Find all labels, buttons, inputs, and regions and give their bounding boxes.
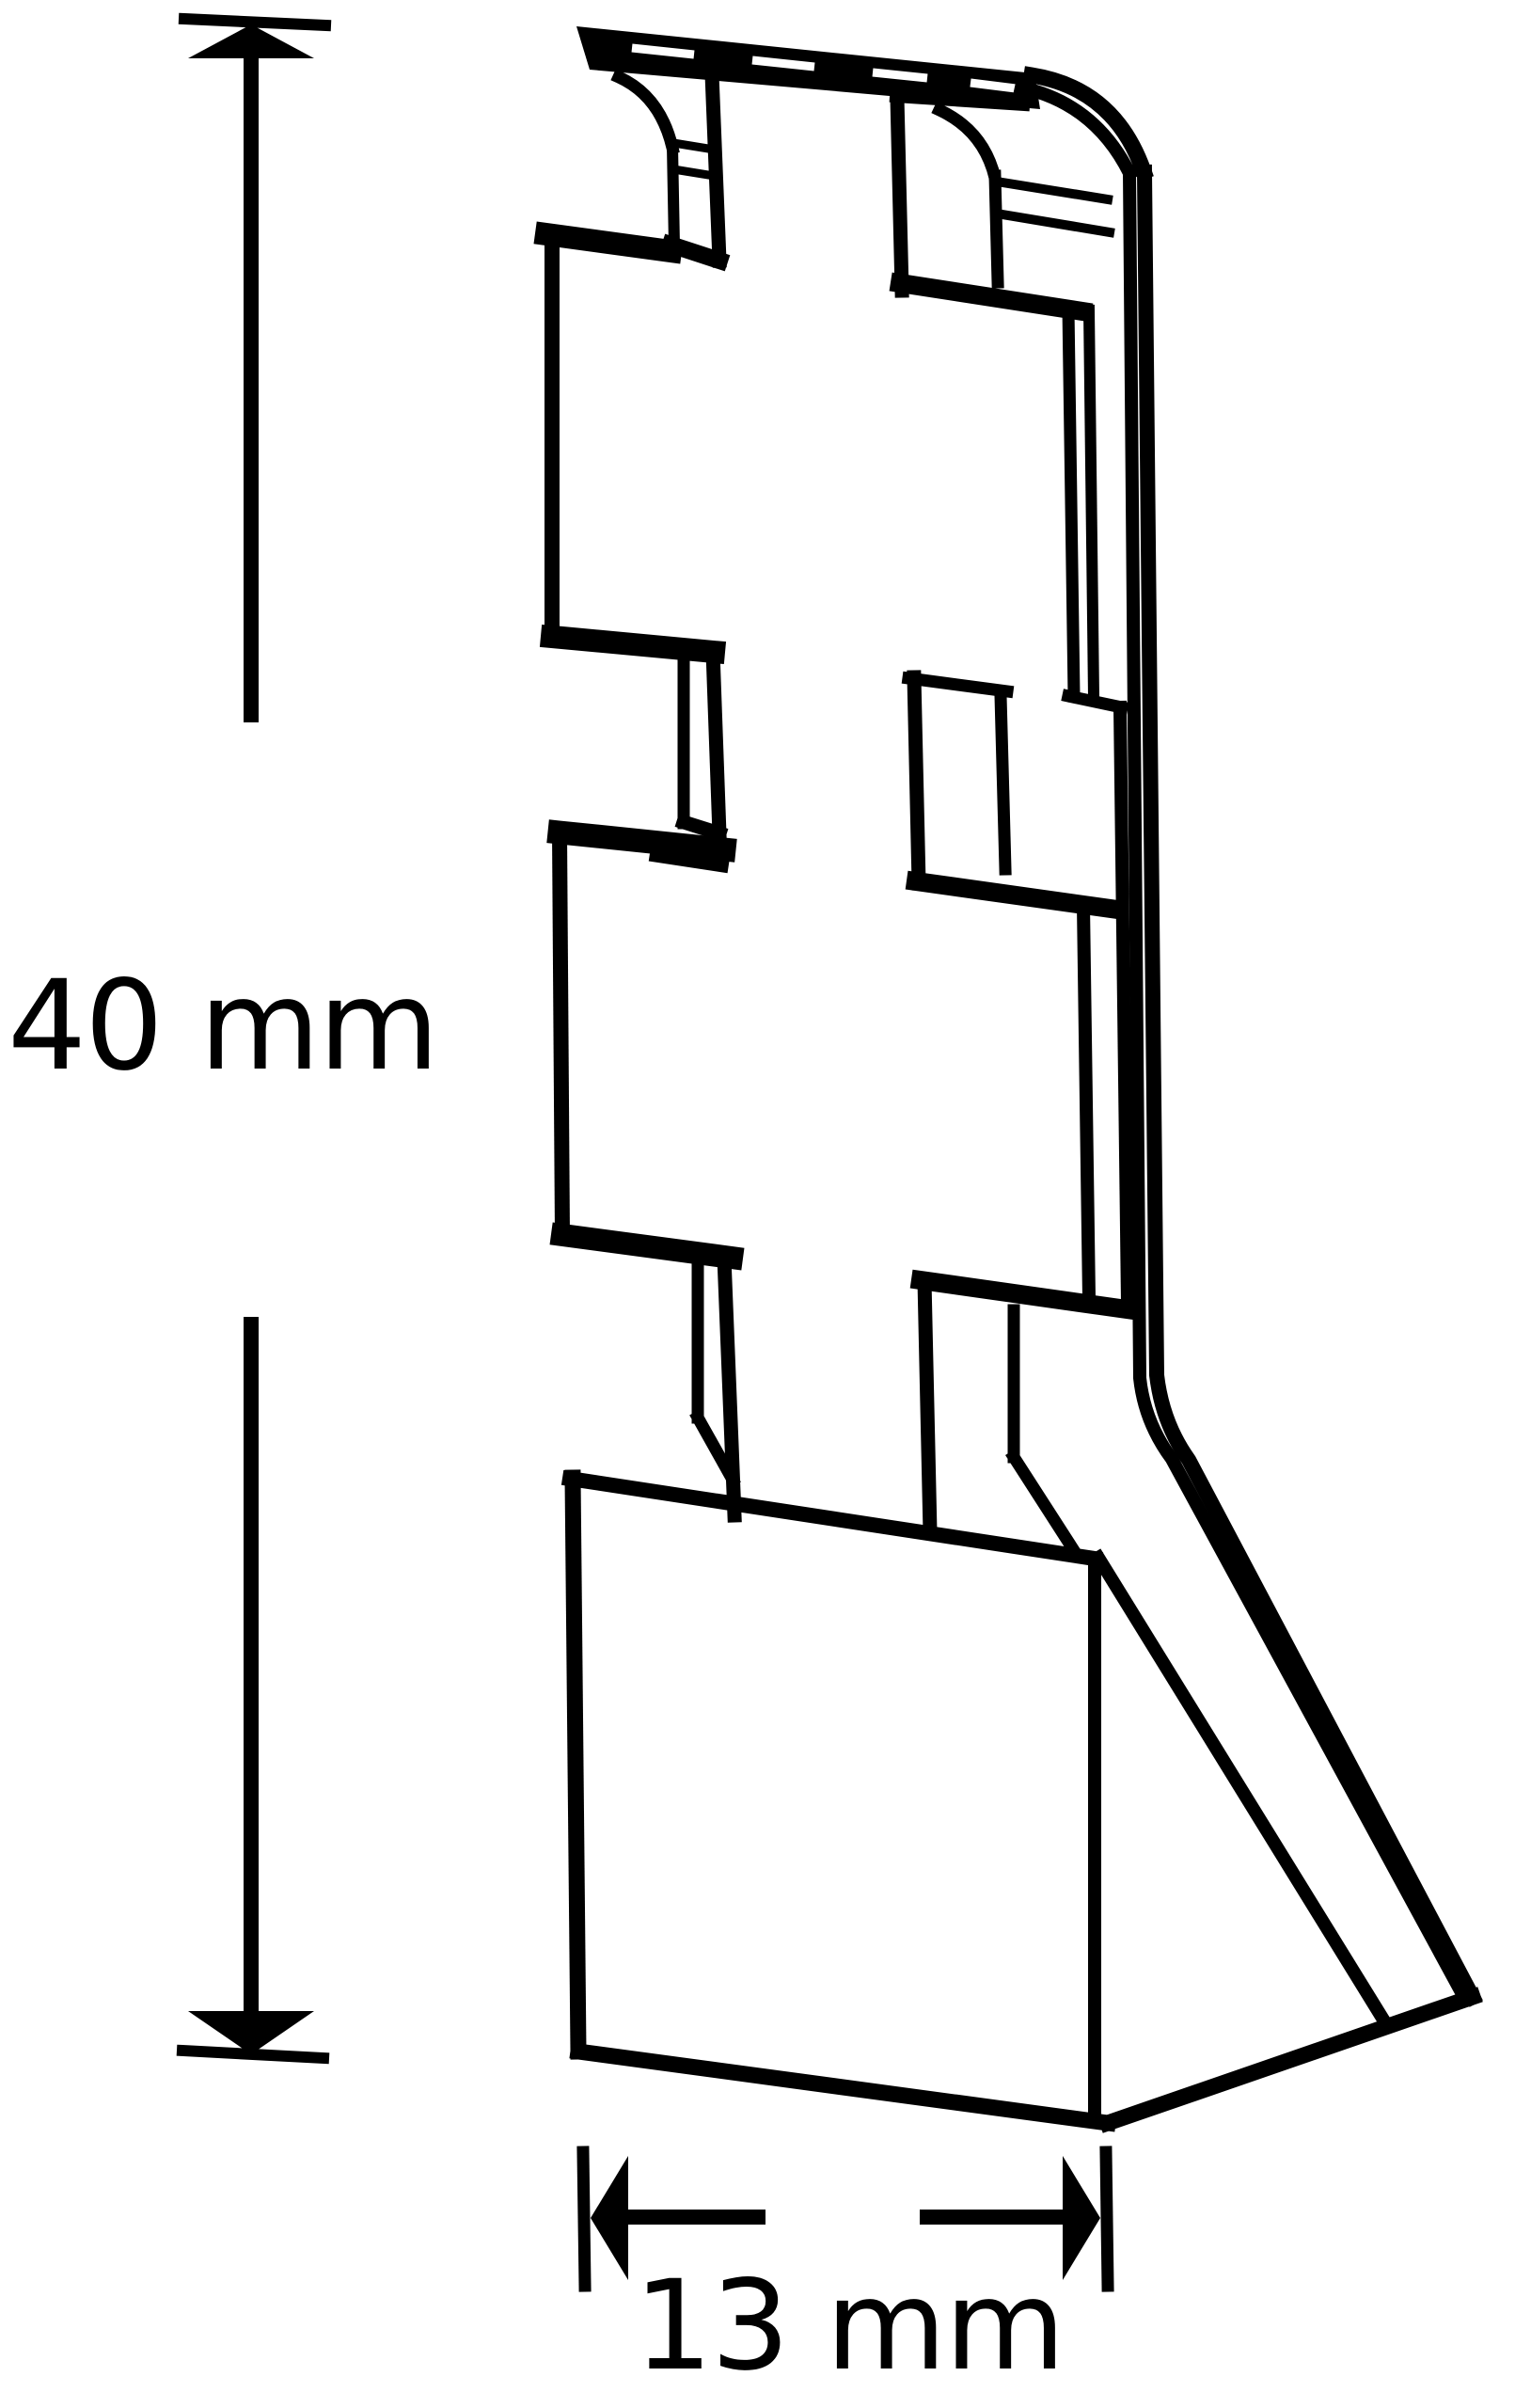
height-tick-bottom — [182, 2051, 324, 2058]
rail-highlight-4 — [971, 83, 1016, 88]
right-tab2-bottom-bar — [916, 881, 1111, 909]
flange-bottom-bar — [546, 234, 671, 251]
depth-arrowhead-right-icon — [1063, 2156, 1100, 2280]
right-tab1-rung-1 — [997, 182, 1108, 199]
tab2-corner-patch — [658, 854, 720, 863]
base-left-edge — [573, 1478, 578, 2052]
tab2-left-edge — [560, 832, 562, 1235]
part-line-work — [546, 26, 1473, 2123]
tab2-top-bar — [560, 832, 724, 849]
depth-dimension-label: 13 mm — [634, 2254, 1064, 2399]
plate-front-edge-upper-1 — [1068, 309, 1074, 696]
flange-rung-2 — [673, 169, 708, 175]
flange-inner-vertical — [672, 146, 674, 246]
right-tab1-left-edge — [897, 98, 902, 291]
base-top-edge — [570, 1479, 1095, 1559]
right-tab2-top-edge — [908, 678, 1007, 691]
height-tick-top — [184, 19, 325, 25]
depth-dimension: 13 mm — [583, 2152, 1108, 2399]
diagram-canvas: 40 mm 13 mm — [0, 0, 1531, 2408]
flange-outer-vertical — [712, 74, 719, 261]
rail-highlight-3 — [873, 72, 927, 78]
notch2-step-bar — [562, 1235, 732, 1258]
depth-tick-right — [1106, 2152, 1108, 2286]
notch1-wall-outer — [713, 652, 719, 834]
right-tab1-bottom-bar — [900, 283, 1082, 311]
flange-rung-1 — [673, 143, 708, 149]
right-tab1-curve — [939, 110, 995, 178]
right-notch-left-edge — [924, 1280, 930, 1532]
height-dimension-label: 40 mm — [8, 954, 437, 1099]
right-tab2-left-edge — [914, 677, 919, 883]
plate-back-edge-inner-diagonal — [1129, 171, 1461, 1992]
plate-front-edge-upper-2 — [1089, 310, 1094, 697]
right-notch-stair — [1014, 1457, 1075, 1552]
right-tab1-inner-vertical — [995, 176, 998, 282]
right-notch-top-bar — [921, 1280, 1127, 1309]
depth-tick-left — [583, 2152, 585, 2286]
right-tab2-inner-vertical — [1001, 696, 1005, 869]
foot-inner-diagonal — [1098, 1558, 1386, 2024]
plate-front-edge-lower — [1083, 905, 1089, 1299]
plate-front-edge-mid — [1120, 707, 1128, 1304]
right-tab1-rung-2 — [997, 214, 1110, 232]
base-bottom-edge — [578, 2052, 1108, 2123]
technical-drawing-svg: 40 mm 13 mm — [0, 0, 1531, 2408]
flange-curve — [619, 77, 672, 148]
foot-bottom-edge — [1108, 1997, 1473, 2123]
height-dimension: 40 mm — [8, 19, 437, 2058]
